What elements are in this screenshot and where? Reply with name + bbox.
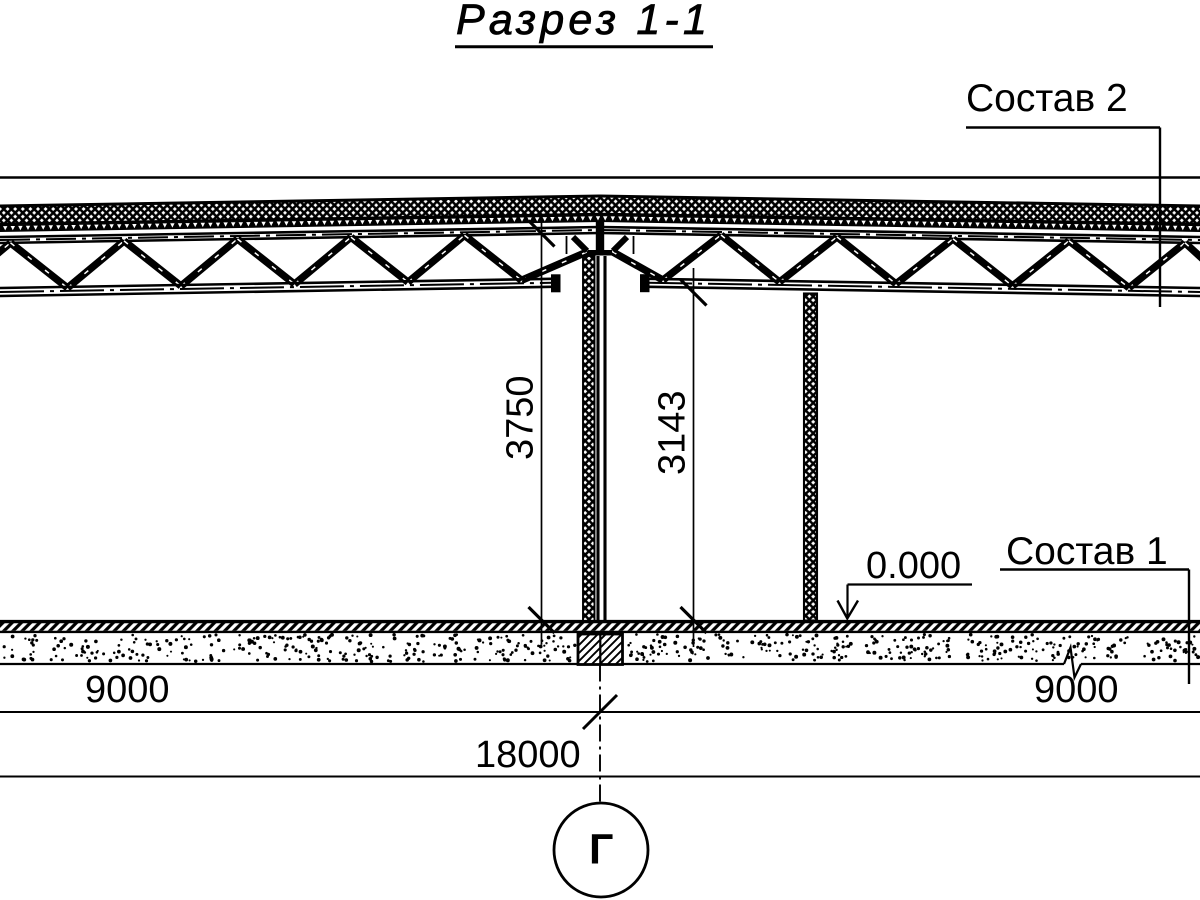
svg-text:Состав 2: Состав 2 (966, 77, 1128, 120)
svg-text:0.000: 0.000 (866, 545, 961, 587)
svg-text:Разрез 1-1: Разрез 1-1 (456, 0, 711, 44)
svg-text:18000: 18000 (475, 734, 581, 776)
svg-text:3143: 3143 (652, 390, 694, 475)
svg-text:3750: 3750 (500, 375, 542, 460)
svg-text:9000: 9000 (85, 669, 170, 711)
svg-text:Г: Г (589, 826, 613, 874)
svg-text:9000: 9000 (1034, 669, 1119, 711)
svg-text:Состав 1: Состав 1 (1006, 530, 1168, 573)
